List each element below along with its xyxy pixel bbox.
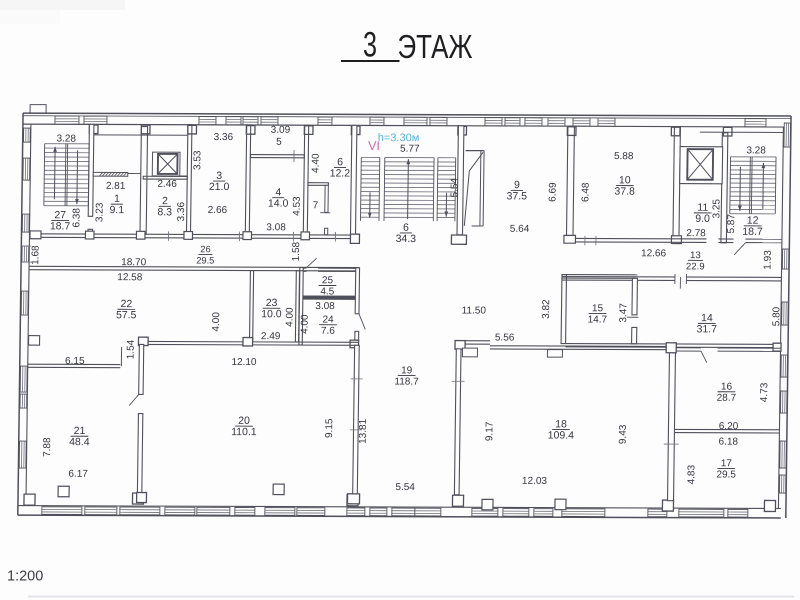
svg-text:1.54: 1.54 — [126, 339, 137, 359]
svg-text:3.82: 3.82 — [541, 299, 552, 319]
svg-text:6.69: 6.69 — [548, 182, 559, 202]
svg-text:4.53: 4.53 — [292, 196, 303, 216]
svg-text:3.47: 3.47 — [618, 303, 629, 323]
svg-text:13.81: 13.81 — [358, 418, 369, 444]
svg-text:25: 25 — [322, 275, 334, 286]
svg-text:5.87: 5.87 — [726, 214, 737, 234]
svg-text:16: 16 — [721, 382, 733, 393]
svg-text:3.28: 3.28 — [56, 134, 76, 145]
svg-text:4.00: 4.00 — [211, 312, 222, 332]
svg-text:4.73: 4.73 — [759, 382, 770, 402]
svg-text:4.83: 4.83 — [686, 464, 697, 484]
svg-text:9.1: 9.1 — [109, 204, 124, 216]
svg-text:11.50: 11.50 — [462, 305, 487, 316]
svg-text:9.17: 9.17 — [484, 421, 495, 441]
svg-text:3.36: 3.36 — [176, 202, 187, 222]
svg-text:14.7: 14.7 — [588, 314, 608, 325]
svg-text:4.00: 4.00 — [284, 307, 295, 327]
svg-text:3.23: 3.23 — [94, 202, 105, 222]
svg-text:2.78: 2.78 — [686, 228, 706, 239]
svg-text:18.7: 18.7 — [742, 226, 763, 238]
svg-text:6.48: 6.48 — [580, 182, 591, 202]
svg-text:37.8: 37.8 — [614, 186, 635, 198]
svg-text:9.15: 9.15 — [324, 418, 335, 438]
svg-text:31.7: 31.7 — [696, 323, 717, 335]
svg-text:7.6: 7.6 — [321, 326, 335, 337]
svg-text:5.54: 5.54 — [395, 482, 415, 493]
svg-text:1.93: 1.93 — [763, 250, 774, 270]
svg-text:3.28: 3.28 — [746, 145, 766, 156]
svg-text:3: 3 — [363, 26, 377, 65]
svg-text:13: 13 — [690, 250, 701, 261]
svg-text:12.03: 12.03 — [522, 476, 548, 487]
svg-text:5: 5 — [276, 137, 282, 148]
svg-text:34.3: 34.3 — [396, 233, 417, 245]
svg-text:10.0: 10.0 — [261, 308, 282, 320]
svg-text:5.88: 5.88 — [614, 151, 634, 162]
svg-text:110.1: 110.1 — [231, 426, 257, 438]
svg-text:14.0: 14.0 — [268, 198, 289, 210]
svg-text:5.80: 5.80 — [771, 306, 782, 326]
svg-text:12.2: 12.2 — [330, 167, 351, 179]
svg-text:12.58: 12.58 — [117, 272, 143, 283]
svg-text:5.54: 5.54 — [449, 178, 460, 198]
svg-text:h=3.30м: h=3.30м — [378, 132, 420, 144]
svg-text:19: 19 — [401, 365, 413, 376]
svg-text:9.0: 9.0 — [695, 213, 710, 225]
svg-text:2.66: 2.66 — [208, 205, 228, 216]
svg-text:7.88: 7.88 — [42, 437, 53, 457]
svg-text:7: 7 — [313, 200, 319, 211]
svg-text:109.4: 109.4 — [548, 430, 575, 442]
svg-text:29.5: 29.5 — [716, 469, 736, 480]
svg-text:12.10: 12.10 — [231, 357, 257, 368]
svg-text:1.58: 1.58 — [291, 241, 302, 261]
svg-text:37.5: 37.5 — [507, 190, 528, 202]
svg-text:17: 17 — [721, 458, 733, 469]
svg-text:118.7: 118.7 — [394, 377, 419, 388]
svg-text:6.20: 6.20 — [719, 421, 739, 432]
svg-text:8.3: 8.3 — [157, 206, 172, 218]
svg-text:4.40: 4.40 — [310, 153, 321, 173]
svg-text:2.81: 2.81 — [106, 181, 126, 192]
svg-text:5.64: 5.64 — [510, 224, 530, 235]
svg-text:5.56: 5.56 — [495, 333, 515, 344]
svg-text:3.08: 3.08 — [315, 301, 335, 312]
svg-text:9.43: 9.43 — [618, 424, 629, 444]
svg-text:6.15: 6.15 — [65, 356, 85, 367]
svg-text:26: 26 — [200, 244, 210, 254]
svg-text:2.49: 2.49 — [261, 331, 281, 342]
svg-text:3.53: 3.53 — [192, 150, 203, 170]
svg-text:ЭТАЖ: ЭТАЖ — [398, 28, 473, 65]
svg-text:22.9: 22.9 — [686, 261, 705, 272]
svg-text:3.36: 3.36 — [214, 132, 234, 143]
svg-text:1:200: 1:200 — [7, 569, 43, 585]
svg-text:28.7: 28.7 — [717, 393, 737, 404]
svg-text:21.0: 21.0 — [209, 181, 230, 193]
svg-text:6.17: 6.17 — [68, 469, 88, 480]
svg-text:4.00: 4.00 — [299, 314, 310, 334]
svg-text:18.7: 18.7 — [50, 220, 71, 232]
svg-text:18.70: 18.70 — [121, 257, 147, 268]
svg-text:57.5: 57.5 — [116, 309, 137, 321]
svg-text:2.46: 2.46 — [157, 179, 177, 190]
svg-text:15: 15 — [592, 303, 604, 314]
svg-text:29.5: 29.5 — [196, 255, 214, 265]
svg-text:12.66: 12.66 — [641, 248, 667, 259]
svg-text:1.68: 1.68 — [30, 245, 41, 265]
svg-text:3.08: 3.08 — [266, 222, 286, 233]
svg-text:6.18: 6.18 — [718, 437, 738, 448]
svg-text:3.09: 3.09 — [271, 125, 291, 136]
svg-text:4.5: 4.5 — [320, 286, 334, 297]
svg-text:6.38: 6.38 — [71, 208, 82, 228]
svg-text:5.77: 5.77 — [400, 144, 420, 155]
svg-text:24: 24 — [322, 315, 334, 326]
svg-text:3.25: 3.25 — [711, 199, 722, 219]
svg-text:48.4: 48.4 — [69, 436, 90, 448]
